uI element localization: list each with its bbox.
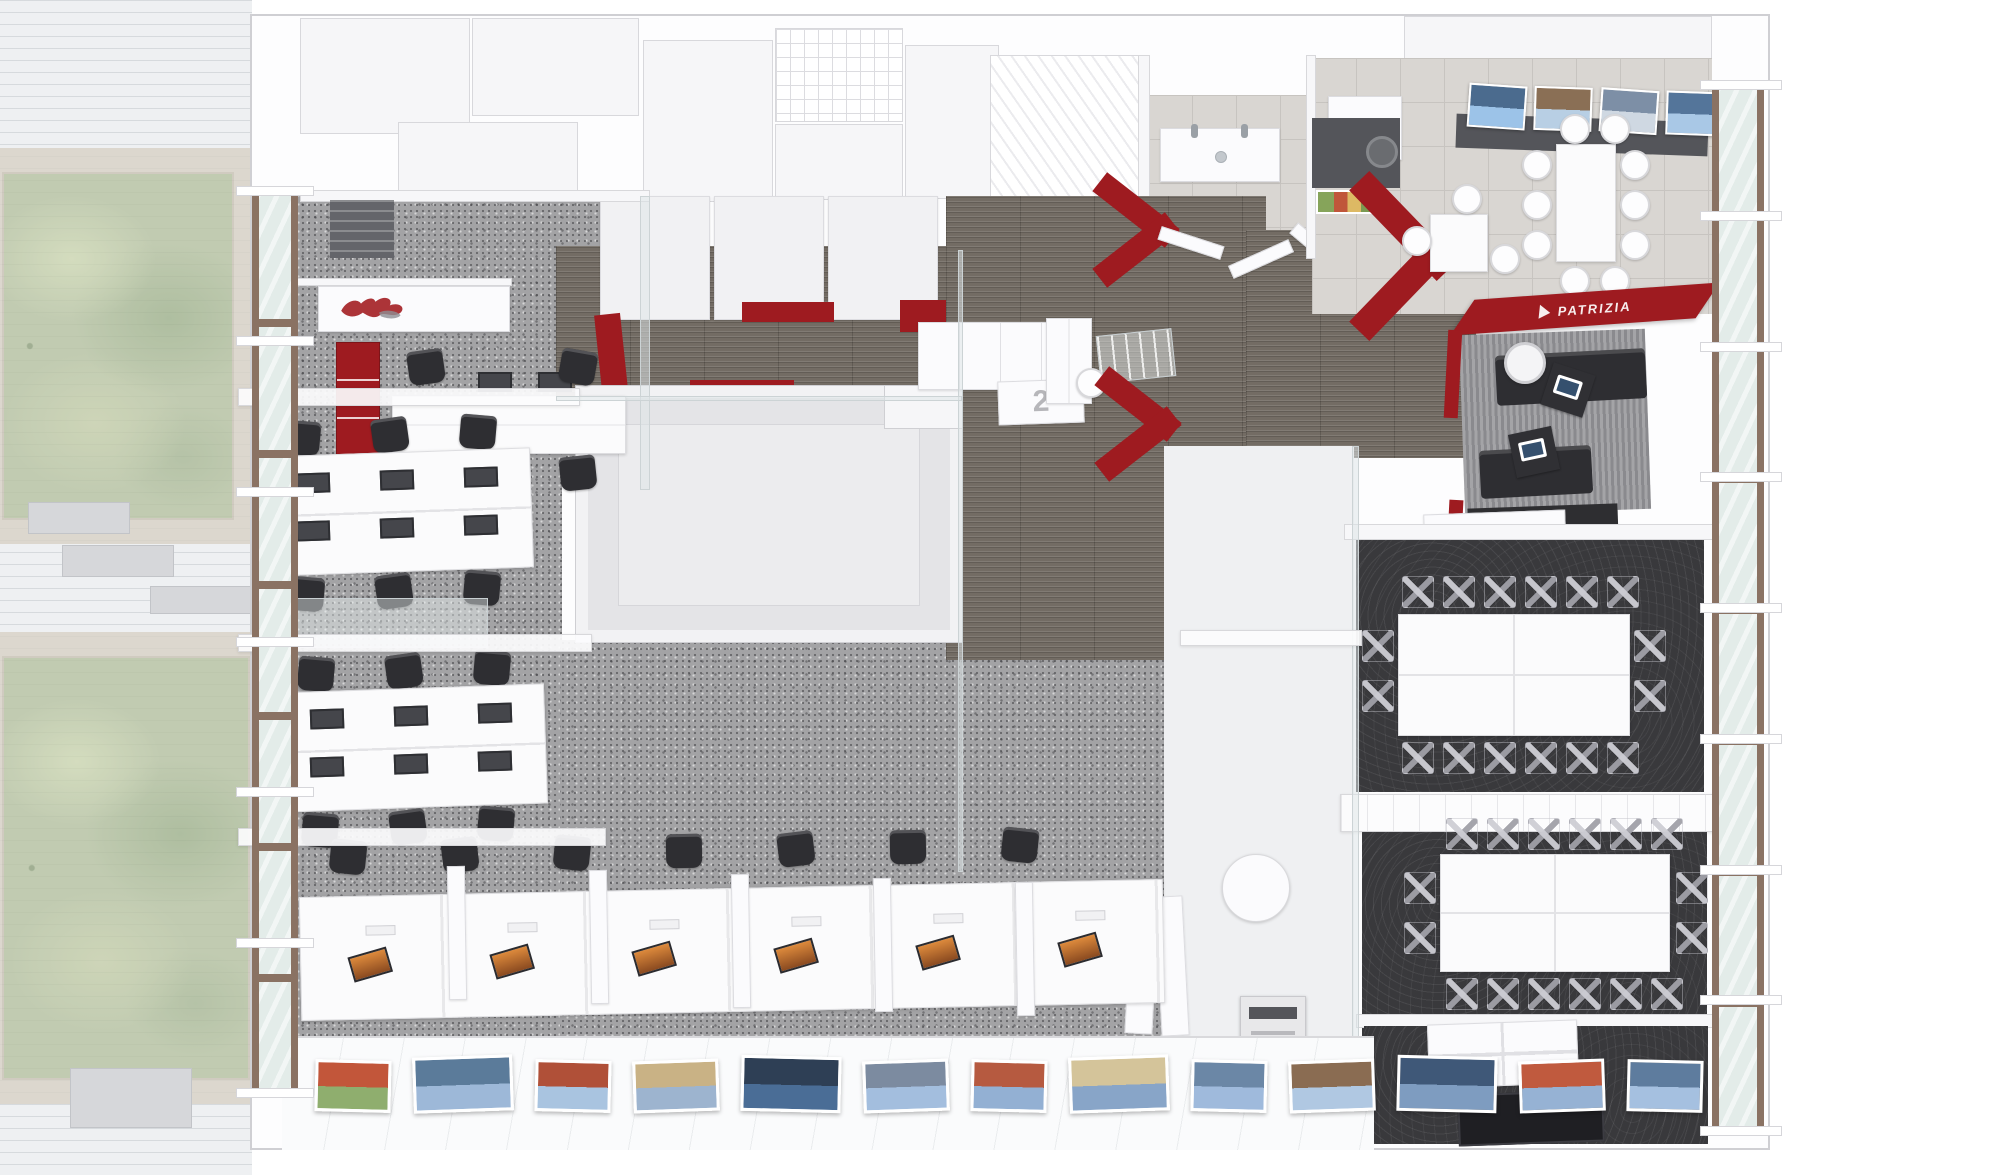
- glass-partition: [640, 196, 650, 490]
- laptop-device: [1518, 438, 1547, 462]
- outdoor-bench: [62, 545, 174, 577]
- conference-seats: [1446, 818, 1683, 850]
- monitor: [310, 708, 345, 729]
- facade-ledge: [1700, 865, 1782, 875]
- conference-chair: [1446, 978, 1478, 1010]
- office-chair: [384, 652, 424, 691]
- monitor: [394, 753, 429, 774]
- office-chair: [473, 649, 512, 686]
- gallery-photo: [534, 1059, 611, 1113]
- facade-ledge: [236, 336, 314, 346]
- roof-box: [905, 45, 999, 199]
- cafe-chair: [1522, 230, 1552, 260]
- facade-ledge: [1700, 734, 1782, 744]
- conference-chair: [1484, 576, 1516, 608]
- kitchen-sink: [1366, 136, 1398, 168]
- partition-panel: [873, 878, 893, 1012]
- gallery-photo: [1626, 1059, 1703, 1113]
- facade-ledge: [236, 487, 314, 497]
- conference-chair: [1610, 818, 1642, 850]
- cafe-chair: [1490, 244, 1520, 274]
- conference-chair: [1402, 576, 1434, 608]
- conference-chair: [1484, 742, 1516, 774]
- workstation: [605, 900, 717, 1002]
- conference-table-1: [1398, 614, 1630, 736]
- facade-ledge: [236, 1088, 314, 1098]
- workstation: [321, 906, 433, 1008]
- keyboard: [507, 922, 537, 933]
- conference-chair: [1607, 742, 1639, 774]
- floorplan-render: 2 PATRIZIA: [0, 0, 2000, 1175]
- workstation: [747, 897, 859, 999]
- partition-panel: [731, 874, 751, 1008]
- monitor-orange-screen: [1057, 932, 1103, 968]
- cafe-chair: [1620, 150, 1650, 180]
- office-chair: [558, 454, 597, 492]
- monitor: [380, 469, 415, 490]
- gallery-photo: [412, 1054, 514, 1113]
- keyboard: [933, 913, 963, 924]
- conference-chair: [1651, 978, 1683, 1010]
- monitor: [310, 756, 345, 777]
- meeting-pod: [600, 196, 710, 320]
- facade-ledges-right: [1700, 80, 1782, 1136]
- monitor: [464, 466, 499, 487]
- cafe-chair: [1620, 230, 1650, 260]
- wc-sink-unit: [1160, 128, 1280, 182]
- gallery-photo: [632, 1059, 720, 1114]
- glass-wall: [556, 396, 962, 401]
- roof-box: [300, 18, 470, 134]
- conference-chair: [1443, 576, 1475, 608]
- facade-ledge: [236, 637, 314, 647]
- kitchen-counter: [1312, 118, 1400, 188]
- monitor: [380, 517, 415, 538]
- board-room-table: [618, 424, 920, 606]
- conference-seats: [1362, 630, 1394, 712]
- conference-chair: [1634, 680, 1666, 712]
- monitor-orange-screen: [489, 944, 535, 980]
- keyboard: [791, 916, 821, 927]
- partition-panel: [1015, 882, 1035, 1016]
- faucet: [1191, 124, 1198, 138]
- corridor-floor: [1164, 446, 1354, 1040]
- cafe-chair: [1402, 226, 1432, 256]
- conference-chair: [1607, 576, 1639, 608]
- facade-ledge: [236, 787, 314, 797]
- facade-ledge: [1700, 603, 1782, 613]
- conference-chair: [1566, 576, 1598, 608]
- partition-panel: [447, 866, 467, 1000]
- building-photo: [1467, 83, 1528, 131]
- conference-chair: [1487, 818, 1519, 850]
- conference-chair: [1362, 680, 1394, 712]
- board-room-notch: [884, 386, 963, 429]
- monitor-orange-screen: [347, 947, 393, 983]
- cafe-chair: [1620, 190, 1650, 220]
- cafe-seats-top: [1560, 114, 1630, 144]
- cafe-chair: [1522, 190, 1552, 220]
- garden-courtyard-lower: [0, 632, 274, 1104]
- workstation: [463, 903, 575, 1005]
- sink-drain: [1215, 151, 1227, 163]
- facade-ledge: [236, 186, 314, 196]
- skylight-grid: [775, 28, 903, 122]
- facade-ledge: [1700, 1126, 1782, 1136]
- patrizia-logo-text: PATRIZIA: [1558, 298, 1633, 318]
- facade-ledge: [1700, 211, 1782, 221]
- conference-chair: [1404, 922, 1436, 954]
- conference-table-2: [1440, 854, 1670, 972]
- gallery-photo: [1068, 1054, 1170, 1113]
- office-chair: [370, 416, 410, 455]
- outdoor-planter: [70, 1068, 192, 1128]
- ceiling-beam: [1180, 630, 1362, 646]
- gallery-photo: [740, 1055, 841, 1113]
- conference-chair: [1404, 872, 1436, 904]
- monitor: [394, 705, 429, 726]
- monitor-orange-screen: [631, 941, 677, 977]
- patrizia-logo: PATRIZIA: [1538, 298, 1633, 320]
- conference-chair: [1525, 576, 1557, 608]
- office-chair: [666, 834, 703, 869]
- cafe-chair: [1560, 114, 1590, 144]
- conference-chair: [1487, 978, 1519, 1010]
- cafe-chair: [1452, 184, 1482, 214]
- tablet-side-table: [1508, 426, 1560, 478]
- facade-ledge: [1700, 342, 1782, 352]
- gallery-photo: [862, 1059, 950, 1114]
- facade-ledges-left: [236, 186, 314, 1098]
- conference-chair: [1634, 630, 1666, 662]
- workstation: [889, 894, 1001, 996]
- monitor-orange-screen: [915, 935, 961, 971]
- cafe-seats-right: [1620, 150, 1650, 260]
- conference-chair: [1566, 742, 1598, 774]
- gallery-photo-row: [315, 1056, 1703, 1112]
- facade-ledge: [1700, 472, 1782, 482]
- monitor: [464, 514, 499, 535]
- gallery-photo: [1396, 1055, 1497, 1113]
- gallery-photo: [1518, 1059, 1606, 1114]
- keyboard: [649, 919, 679, 930]
- cafe-chair: [1600, 114, 1630, 144]
- conference-chair: [1362, 630, 1394, 662]
- tablet-device: [1553, 374, 1584, 400]
- facade-ledge: [236, 938, 314, 948]
- keyboard: [365, 925, 395, 936]
- conference-seats: [1402, 576, 1639, 608]
- glass-wall: [1352, 446, 1359, 1040]
- conference-seats: [1634, 630, 1666, 712]
- cafe-table-square: [1430, 214, 1488, 272]
- cafe-chair: [1522, 150, 1552, 180]
- conference-chair: [1569, 978, 1601, 1010]
- conference-seats: [1404, 872, 1436, 954]
- glass-wall: [958, 250, 963, 872]
- conference-seats: [1446, 978, 1683, 1010]
- monitor: [478, 702, 513, 723]
- office-chair: [890, 830, 927, 865]
- conference-chair: [1651, 818, 1683, 850]
- cafe-table-long: [1556, 144, 1616, 262]
- outdoor-bench: [28, 502, 130, 534]
- gallery-photo: [1190, 1059, 1267, 1113]
- conference-wall: [1344, 524, 1718, 540]
- credenza: [318, 286, 510, 332]
- roof-box: [472, 18, 639, 116]
- monitor-orange-screen: [773, 938, 819, 974]
- patrizia-logo-mark: [1539, 304, 1551, 319]
- facade-ledge: [1700, 995, 1782, 1005]
- keyboard: [1075, 910, 1105, 921]
- round-table: [1222, 854, 1290, 922]
- conference-chair: [1528, 818, 1560, 850]
- printer-control-panel: [1249, 1007, 1297, 1019]
- workstation: [1031, 891, 1143, 993]
- office-chair: [557, 347, 598, 387]
- gallery-photo: [314, 1059, 391, 1113]
- office-chair: [406, 348, 446, 387]
- garden-courtyard-upper: [0, 148, 258, 544]
- office-chair: [459, 413, 498, 450]
- dragon-artwork: [333, 291, 425, 327]
- conference-chair: [1525, 742, 1557, 774]
- floor-lamp: [1504, 342, 1546, 384]
- facade-ledge: [1700, 80, 1782, 90]
- conference-seats: [1402, 742, 1639, 774]
- office-chair: [1000, 826, 1039, 864]
- gallery-photo: [970, 1059, 1047, 1113]
- conference-chair: [1569, 818, 1601, 850]
- office-chair: [776, 830, 816, 868]
- partition-panel: [589, 870, 609, 1004]
- roof-box: [643, 40, 773, 202]
- red-accent-wall: [742, 302, 834, 322]
- conference-chair: [1443, 742, 1475, 774]
- cafe-seats-left: [1522, 150, 1552, 260]
- storage-shelf: [330, 200, 394, 258]
- conference-chair: [1610, 978, 1642, 1010]
- faucet: [1241, 124, 1248, 138]
- roof-box: [775, 124, 903, 200]
- monitor: [478, 750, 513, 771]
- conference-chair: [1446, 818, 1478, 850]
- conference-chair: [1528, 978, 1560, 1010]
- conference-chair: [1402, 742, 1434, 774]
- gallery-photo: [1288, 1059, 1376, 1114]
- printer-tray: [1251, 1031, 1295, 1035]
